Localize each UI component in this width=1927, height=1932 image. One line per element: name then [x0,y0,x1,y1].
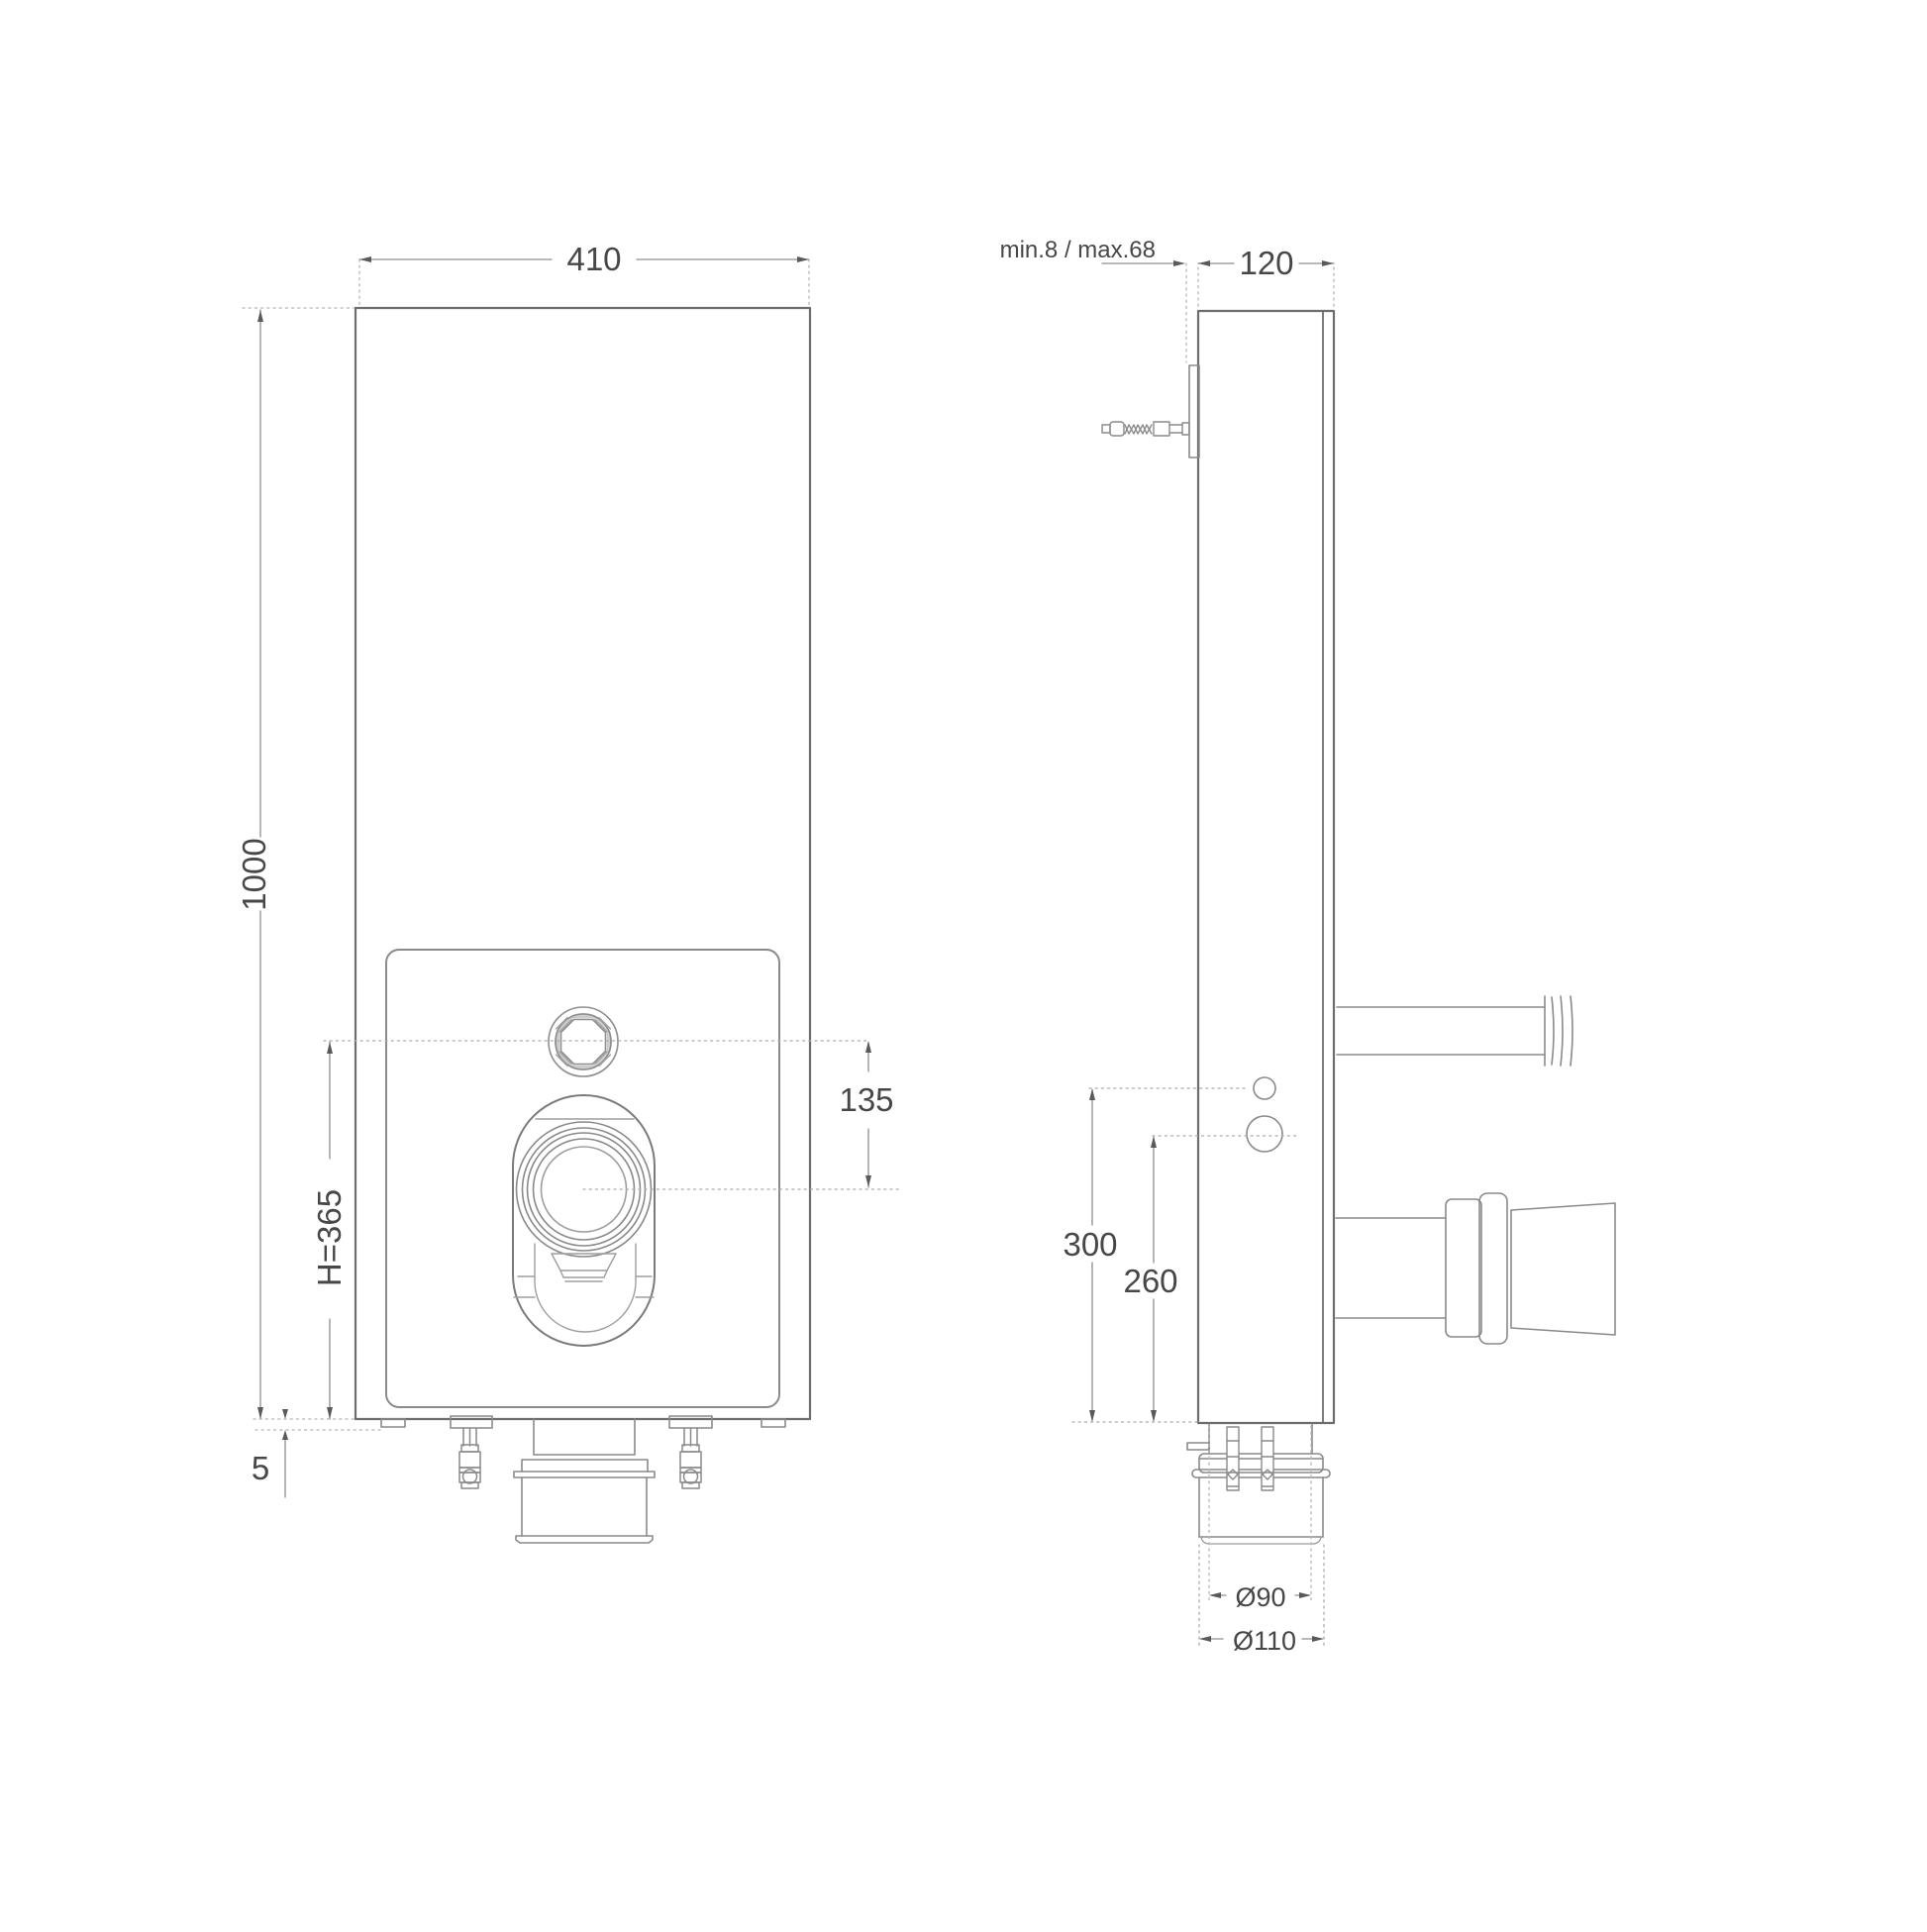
svg-text:5: 5 [252,1450,269,1486]
svg-text:Ø90: Ø90 [1235,1582,1285,1612]
svg-text:410: 410 [566,241,621,277]
svg-text:135: 135 [839,1081,893,1118]
svg-text:H=365: H=365 [311,1189,348,1286]
svg-text:120: 120 [1239,245,1293,281]
svg-text:Ø110: Ø110 [1233,1626,1296,1656]
svg-text:260: 260 [1123,1263,1177,1299]
svg-text:300: 300 [1063,1226,1117,1263]
svg-text:1000: 1000 [236,838,272,910]
svg-text:min.8 / max.68: min.8 / max.68 [1000,237,1156,263]
